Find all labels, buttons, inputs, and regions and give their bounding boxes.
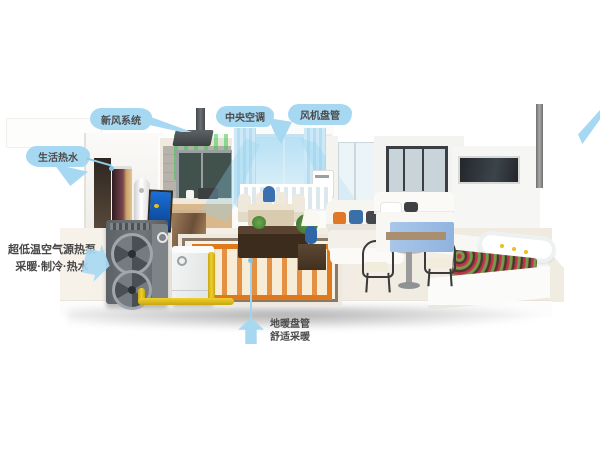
- pipe-yellow-horizontal: [138, 298, 234, 305]
- patio-table-pedestal: [406, 250, 412, 284]
- callout-fresh-air-label: 新风系统: [101, 112, 141, 127]
- side-table: [298, 244, 326, 270]
- unit-logo-dot: [177, 256, 187, 266]
- fan-coil-cabinet: [112, 166, 132, 227]
- callout-tail-icon: [54, 164, 88, 186]
- callout-fresh-air: 新风系统: [90, 108, 152, 130]
- heat-pump-label-line1: 超低温空气源热泵: [6, 242, 98, 259]
- callout-tail-icon: [148, 116, 192, 132]
- unit-logo-dot: [157, 232, 168, 243]
- kitchen-kettle: [186, 190, 194, 199]
- heat-pump-home-diagram: 新风系统 中央空调 风机盘管 生活热水 超低温空气源热泵 采暖·制冷·热水 地暖…: [0, 0, 600, 450]
- patio-chair-cushion: [364, 262, 388, 272]
- range-hood-vent: [172, 130, 213, 146]
- callout-fan-coil: 风机盘管: [288, 104, 352, 125]
- bed-pillow-dark: [404, 202, 418, 212]
- floor-heating-label-line1: 地暖盘管: [266, 318, 314, 331]
- pipe-yellow-vertical: [208, 252, 215, 304]
- rubber-duck: [524, 250, 528, 254]
- table-decor-blue: [263, 186, 275, 202]
- callout-central-ac: 中央空调: [216, 106, 274, 127]
- callout-fan-coil-label: 风机盘管: [300, 107, 340, 122]
- table-plant: [252, 216, 266, 229]
- leader-line: [250, 262, 252, 320]
- aquarium-fish: [154, 204, 159, 208]
- unit-top-face: [172, 246, 214, 253]
- leader-dot: [109, 166, 114, 171]
- patio-table-base: [398, 282, 420, 289]
- bedroom-window-mullion: [403, 149, 405, 191]
- callout-central-ac-label: 中央空调: [225, 109, 265, 124]
- wall-unit-slot: [315, 175, 329, 178]
- rubber-duck: [512, 247, 516, 251]
- unit-top-grille: [110, 223, 150, 230]
- outdoor-shower-pole: [536, 104, 543, 188]
- callout-hot-water: 生活热水: [26, 146, 90, 167]
- bedroom-window-mullion: [422, 149, 424, 191]
- rubber-duck: [500, 244, 504, 248]
- floor-heating-label-line2: 舒适采暖: [266, 331, 314, 344]
- floor-heating-label: 地暖盘管 舒适采暖: [266, 318, 314, 346]
- tank-logo-dot: [139, 188, 144, 193]
- lamp-base-blue: [305, 226, 317, 244]
- fan-top: [111, 233, 153, 275]
- bed-runner: [386, 232, 446, 240]
- patio-chair-legs: [365, 273, 391, 292]
- heat-pump-outdoor-unit: [106, 220, 168, 304]
- patio-chair-cushion: [426, 258, 450, 268]
- callout-hot-water-label: 生活热水: [38, 149, 78, 164]
- patio-chair-legs: [427, 269, 452, 287]
- leader-dot: [248, 258, 253, 263]
- callout-tail-icon: [578, 110, 600, 144]
- right-room-window: [458, 156, 520, 184]
- sofa-pillow-blue: [349, 210, 363, 224]
